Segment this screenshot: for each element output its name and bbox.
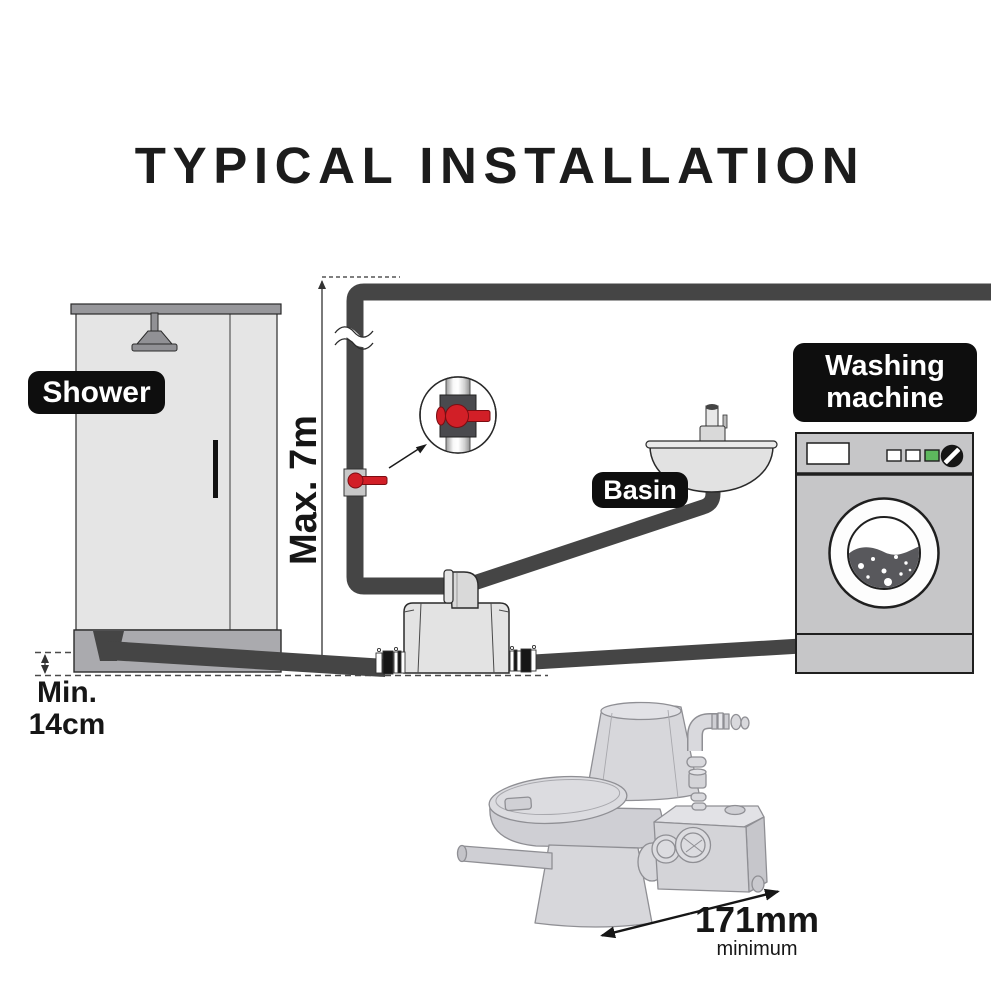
washing-machine-label-line2: machine	[826, 383, 944, 414]
washing-machine-label-line1: Washing	[825, 351, 945, 382]
footprint-dimension-label: 171mm minimum	[688, 902, 826, 960]
shower-cabin	[76, 313, 277, 630]
footprint-value: 171mm	[688, 902, 826, 938]
shower-top-bar	[71, 304, 281, 314]
shower-door-handle	[213, 440, 218, 498]
pump-left-connector	[376, 647, 405, 674]
macerator-box	[652, 806, 767, 893]
washing-machine-drain-pipe	[534, 646, 801, 662]
shower-unit-graphic	[71, 304, 281, 672]
installation-diagram: TYPICAL INSTALLATION Shower Basin Washin…	[0, 0, 1000, 1000]
basin-rim	[646, 441, 777, 448]
washing-machine-button	[887, 450, 901, 461]
washing-machine-graphic	[796, 433, 973, 673]
min-clearance-dimension-label: Min. 14cm	[8, 677, 126, 740]
footprint-qualifier: minimum	[688, 938, 826, 960]
washing-machine-display	[807, 443, 849, 464]
page-title: TYPICAL INSTALLATION	[0, 136, 1000, 195]
max-height-dimension-label: Max. 7m	[282, 410, 326, 570]
basin-label: Basin	[592, 472, 688, 508]
basin-label-text: Basin	[603, 475, 677, 506]
pump-outlet-elbow	[444, 570, 478, 608]
min-clearance-line1: Min.	[8, 677, 126, 709]
shower-label: Shower	[28, 371, 165, 414]
shower-label-text: Shower	[42, 376, 150, 410]
isolation-valve	[344, 469, 387, 496]
toilet-outlet-pipe	[458, 846, 553, 870]
valve-detail-circle	[420, 376, 496, 455]
min-clearance-line2: 14cm	[8, 709, 126, 741]
washing-machine-power-button	[925, 450, 939, 461]
pump-right-connector	[510, 645, 536, 672]
basin-tap-icon	[700, 404, 727, 443]
toilet-macerator-graphic	[458, 703, 768, 928]
fitting-stack	[687, 713, 749, 810]
washing-machine-dial-icon	[942, 446, 963, 467]
washing-machine-button	[906, 450, 920, 461]
washing-machine-label: Washing machine	[793, 343, 977, 422]
valve-detail-arrow	[389, 444, 427, 468]
